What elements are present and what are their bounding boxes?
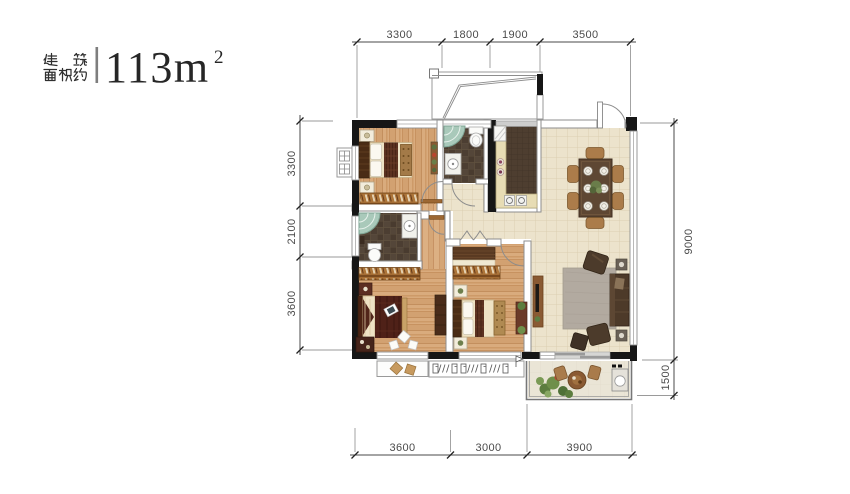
svg-text:1800: 1800 — [453, 29, 479, 41]
svg-text:3600: 3600 — [389, 442, 415, 454]
svg-text:3900: 3900 — [566, 442, 592, 454]
svg-text:113m: 113m — [105, 43, 210, 92]
svg-text:1900: 1900 — [502, 29, 528, 41]
svg-text:9000: 9000 — [683, 228, 695, 254]
svg-text:3300: 3300 — [386, 29, 412, 41]
svg-text:1500: 1500 — [660, 364, 672, 390]
svg-text:2: 2 — [214, 47, 224, 68]
svg-text:3000: 3000 — [475, 442, 501, 454]
svg-text:3300: 3300 — [286, 150, 298, 176]
svg-text:3600: 3600 — [286, 290, 298, 316]
svg-text:2100: 2100 — [286, 218, 298, 244]
svg-text:3500: 3500 — [572, 29, 598, 41]
